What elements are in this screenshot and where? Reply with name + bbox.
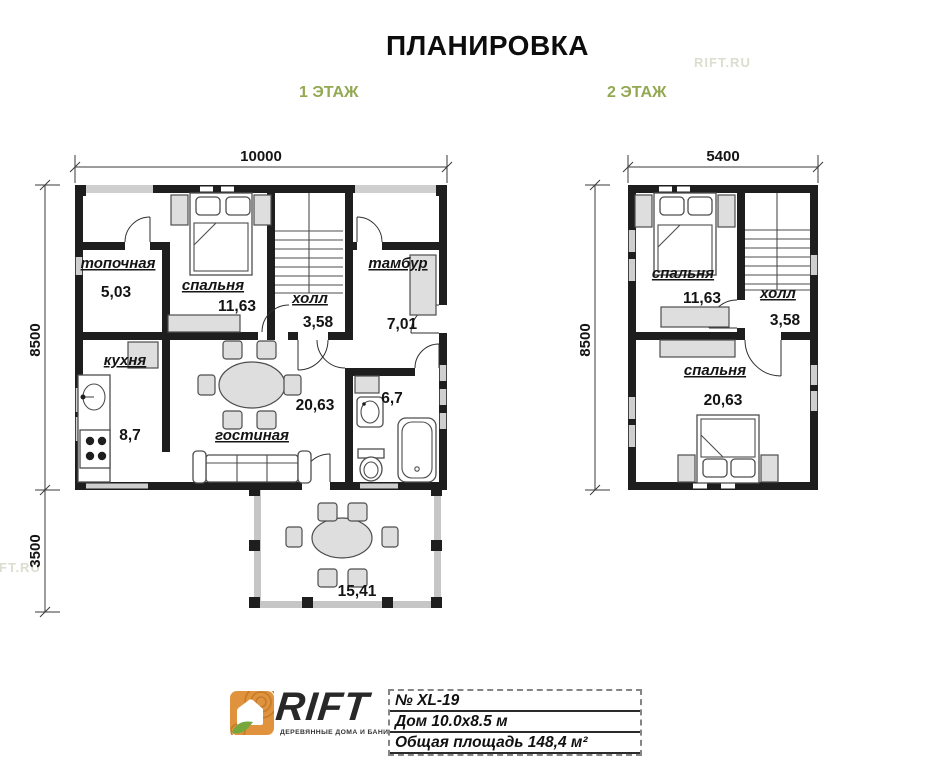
kitchen-unit (78, 375, 110, 482)
staircase (275, 193, 343, 293)
toilet-icon (358, 449, 384, 481)
floor-plan-page: RIFT.RU RIFT.RU ПЛАНИРОВКА 1 ЭТАЖ 2 ЭТАЖ… (0, 0, 939, 784)
dim-floor1-terrace: 3500 (30, 534, 44, 567)
room-label-vestibule: тамбур (368, 255, 427, 272)
room-label-bedroom1: спальня (652, 265, 714, 282)
bed (635, 193, 735, 275)
room-area-vestibule: 7,01 (387, 316, 418, 333)
floor2-label: 2 ЭТАЖ (607, 84, 667, 102)
room-label-bedroom2: спальня (684, 362, 746, 379)
room-label-boiler: топочная (81, 255, 156, 272)
room-area-bedroom2: 20,63 (704, 392, 743, 409)
room-label-living: гостиная (215, 427, 289, 444)
room-label-bedroom: спальня (182, 277, 244, 294)
room-area-living: 20,63 (296, 397, 335, 414)
terrace-table (286, 503, 398, 587)
sofa (193, 451, 311, 483)
room-area-bathroom: 6,7 (381, 390, 403, 407)
room-area-hall: 3,58 (303, 314, 334, 331)
page-title: ПЛАНИРОВКА (36, 30, 939, 62)
wardrobe (168, 315, 240, 332)
room-label-kitchen: кухня (104, 352, 147, 369)
room-area-hall: 3,58 (770, 312, 801, 329)
floor2-plan: 5400 8500 (575, 135, 865, 635)
project-house-size: Дом 10.0x8.5 м (390, 712, 640, 733)
room-area-boiler: 5,03 (101, 284, 132, 301)
staircase (745, 193, 810, 290)
dim-floor1-width: 10000 (240, 148, 282, 165)
floor1-label: 1 ЭТАЖ (299, 84, 359, 102)
dresser (660, 340, 735, 357)
dim-floor1-height: 8500 (30, 323, 44, 356)
room-area-terrace: 15,41 (338, 583, 377, 600)
rift-logo-icon (230, 691, 274, 735)
room-label-hall: холл (291, 290, 328, 307)
room-area-bedroom: 11,63 (218, 298, 256, 315)
room-area-bedroom1: 11,63 (683, 290, 721, 307)
dim-floor2-height: 8500 (577, 323, 594, 356)
bed (171, 193, 271, 275)
rift-logo-text: RIFT (274, 685, 372, 730)
floor1-plan: 10000 8500 3500 (30, 135, 470, 635)
project-info-box: № XL-19 Дом 10.0x8.5 м Общая площадь 148… (388, 689, 642, 756)
bed (678, 415, 778, 483)
rift-logo-tagline: ДЕРЕВЯННЫЕ ДОМА И БАНИ (280, 729, 388, 736)
bathtub-icon (398, 418, 436, 482)
room-area-kitchen: 8,7 (119, 427, 141, 444)
project-number: № XL-19 (390, 691, 640, 712)
floor1-walls (75, 185, 447, 490)
dim-floor2-width: 5400 (706, 148, 739, 165)
room-label-hall: холл (759, 285, 796, 302)
project-total-area: Общая площадь 148,4 м² (390, 733, 640, 754)
dining-table (198, 341, 301, 429)
wardrobe (661, 307, 729, 327)
